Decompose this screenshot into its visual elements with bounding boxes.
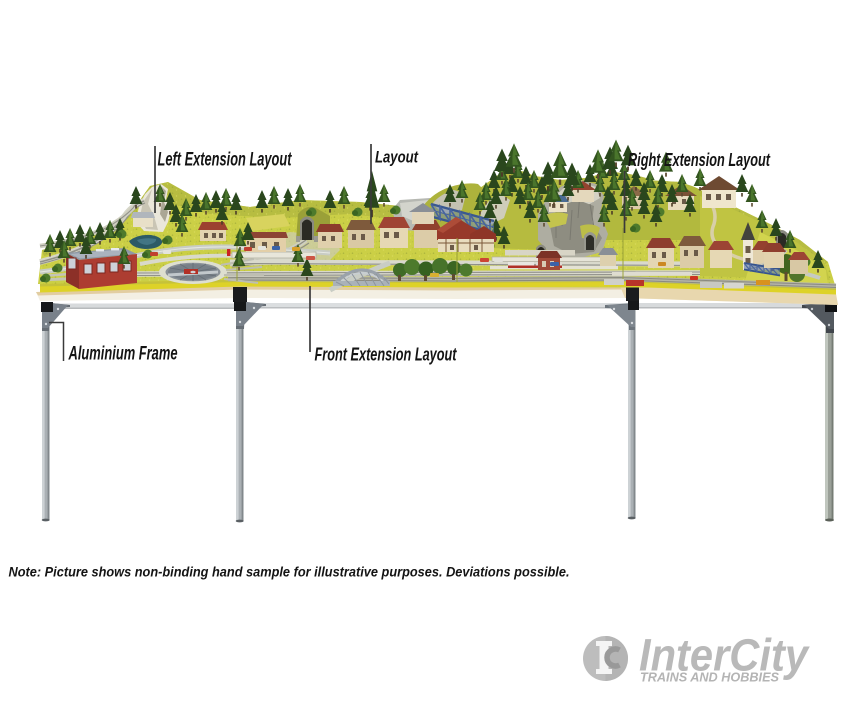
svg-text:TRAINS AND HOBBIES: TRAINS AND HOBBIES — [640, 671, 780, 685]
svg-text:Front Extension Layout: Front Extension Layout — [315, 344, 458, 365]
svg-text:Aluminium Frame: Aluminium Frame — [68, 344, 178, 365]
svg-text:Right Extension Layout: Right Extension Layout — [628, 150, 771, 170]
svg-text:Note: Picture shows non-bindin: Note: Picture shows non-binding hand sam… — [9, 564, 570, 580]
svg-text:Layout: Layout — [375, 149, 419, 167]
svg-text:Left Extension Layout: Left Extension Layout — [158, 150, 292, 171]
